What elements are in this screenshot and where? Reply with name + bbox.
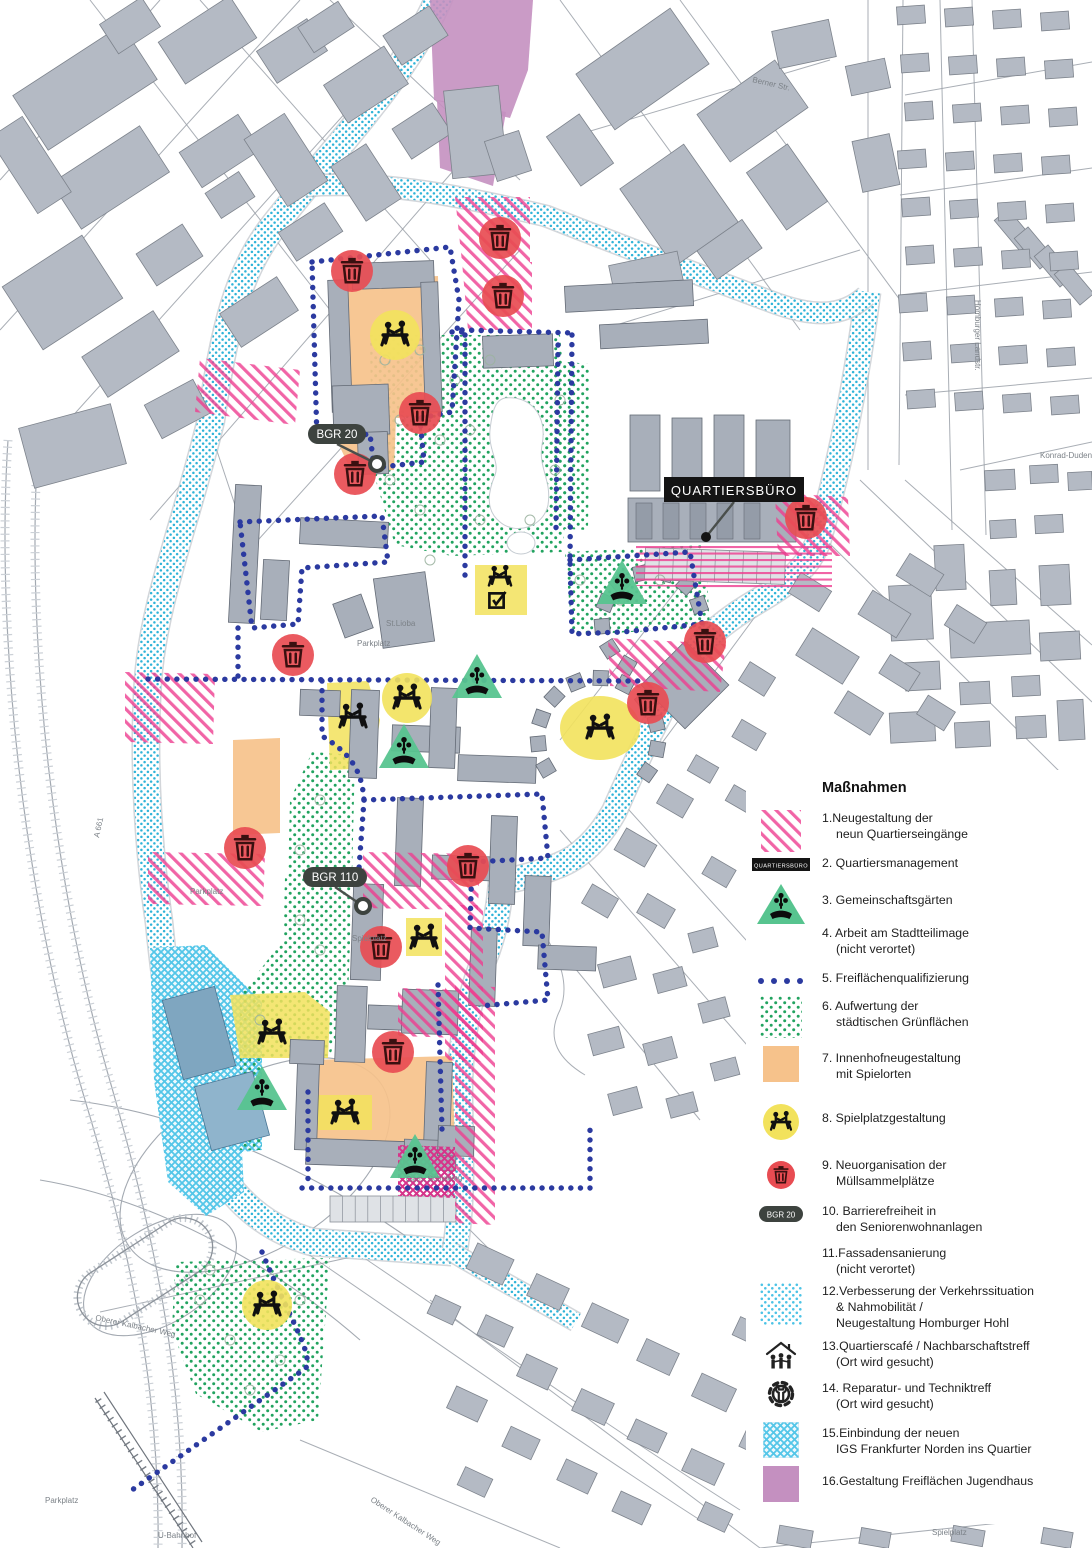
quarter-entrance-area [398, 988, 462, 1038]
legend-swatch-garden [750, 880, 812, 926]
legend-item-label: 16.Gestaltung Freiflächen Jugendhaus [822, 1473, 1033, 1489]
street-label: Parkplatz [190, 887, 223, 896]
legend-swatch-bgrpill: BGR 20 [750, 1206, 812, 1222]
street-label: Konrad-Duden-Weg [1040, 451, 1092, 460]
waste-collection-marker [482, 275, 524, 317]
legend-item-label: 13.Quartierscafé / Nachbarschaftstreff(O… [822, 1338, 1030, 1370]
legend-item-label: 3. Gemeinschaftsgärten [822, 892, 953, 908]
urban-plan-map: QUARTIERSBÜROBGR 20BGR 110 Berner Str.Ho… [0, 0, 1092, 1548]
waste-collection-marker [372, 1031, 414, 1073]
legend-swatch-tealcross [750, 1422, 812, 1458]
street-label: Parkplatz [45, 1496, 78, 1505]
legend-item-label: 11.Fassadensanierung(nicht verortet) [822, 1245, 946, 1277]
callout-label: BGR 20 [317, 429, 358, 441]
street-label: St.Lioba [386, 619, 416, 628]
waste-collection-marker [447, 845, 489, 887]
waste-collection-marker [272, 634, 314, 676]
waste-collection-marker [479, 217, 521, 259]
waste-collection-marker [331, 250, 373, 292]
legend-item-label: 9. Neuorganisation derMüllsammelplätze [822, 1157, 946, 1189]
waste-collection-marker [399, 392, 441, 434]
quarter-entrance-area [125, 672, 215, 744]
legend-item-label: 10. Barrierefreiheit inden Seniorenwohna… [822, 1203, 982, 1235]
legend-swatch-redtrash [750, 1157, 812, 1193]
callout-label: BGR 110 [312, 872, 358, 884]
legend-item-label: 12.Verbesserung der Verkehrssituation& N… [822, 1283, 1034, 1332]
legend-swatch-repair [750, 1378, 812, 1418]
svg-text:BGR 20: BGR 20 [767, 1211, 796, 1220]
legend-swatch-qbtag: QUARTIERSBÜRO [750, 858, 812, 871]
legend-item-label: 5. Freiflächenqualifizierung [822, 970, 969, 986]
legend-swatch-greendots [750, 996, 812, 1038]
legend-item-label: 4. Arbeit am Stadtteilimage(nicht verort… [822, 925, 969, 957]
street-label: U-Bahnhof [158, 1531, 197, 1540]
green-space-area [546, 360, 590, 530]
waste-collection-marker [360, 926, 402, 968]
legend-item-label: 6. Aufwertung derstädtischen Grünflächen [822, 998, 969, 1030]
legend-item-label: 15.Einbindung der neuenIGS Frankfurter N… [822, 1425, 1031, 1457]
legend-swatch-yellowplay [750, 1100, 812, 1144]
legend-swatch-pinkhatch [750, 810, 812, 852]
legend-item-label: 7. Innenhofneugestaltungmit Spielorten [822, 1050, 961, 1082]
street-label: A 661 [92, 816, 105, 838]
legend-swatch-orange [750, 1046, 812, 1082]
legend-title: Maßnahmen [822, 780, 907, 796]
callout-label: QUARTIERSBÜRO [671, 483, 797, 498]
legend-panel: Maßnahmen 1.Neugestaltung derneun Quarti… [746, 770, 1092, 1524]
street-label: Oberer Kalbacher Weg [369, 1495, 442, 1547]
legend-swatch-cyandots [750, 1283, 812, 1325]
street-label: Parkplatz [357, 639, 390, 648]
waste-collection-marker [684, 621, 726, 663]
waste-collection-marker [785, 497, 827, 539]
legend-item-label: 14. Reparatur- und Techniktreff(Ort wird… [822, 1380, 991, 1412]
legend-swatch-purple [750, 1466, 812, 1502]
street-label: Homburger Landstr. [973, 300, 982, 371]
legend-item-label: 1.Neugestaltung derneun Quartierseingäng… [822, 810, 968, 842]
legend-swatch-bluedots [750, 976, 812, 986]
legend-item-label: 8. Spielplatzgestaltung [822, 1110, 946, 1126]
legend-swatch-cafe [750, 1335, 812, 1375]
svg-text:QUARTIERSBÜRO: QUARTIERSBÜRO [754, 863, 808, 870]
waste-collection-marker [627, 682, 669, 724]
legend-item-label: 2. Quartiersmanagement [822, 855, 958, 871]
waste-collection-marker [224, 827, 266, 869]
community-garden-marker [452, 654, 502, 698]
courtyard-area [233, 738, 280, 835]
street-label: Spielplatz [352, 934, 387, 943]
green-space-area [288, 752, 355, 880]
street-label: Spielplatz [932, 1528, 967, 1537]
